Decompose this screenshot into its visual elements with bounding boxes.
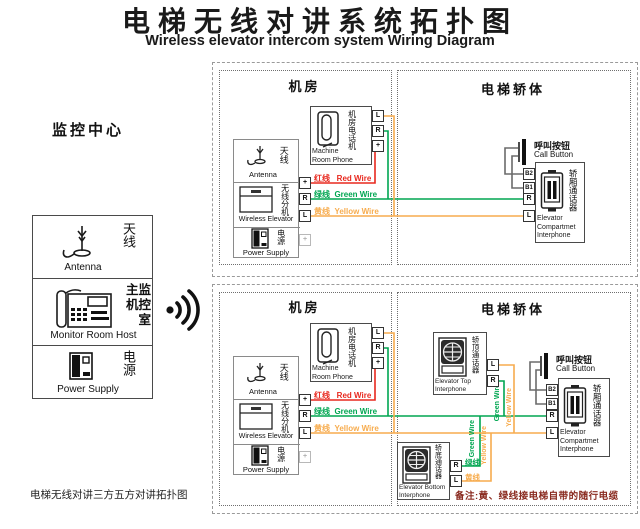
yellow-wire-top	[311, 116, 523, 216]
green-wire-short-label: 绿线	[465, 457, 480, 468]
terminal-plus: +	[299, 394, 311, 406]
phone-terminal-l: L	[372, 327, 384, 339]
bottom-interphone-terminal-r: R	[450, 460, 462, 472]
yellow-wire-label: 黄线 Yellow Wire	[314, 423, 379, 434]
phone-terminal-plus: +	[372, 357, 384, 369]
call-button-wires-bottom	[530, 362, 546, 404]
call-button-icon-bottom	[541, 353, 546, 379]
yellow-wire-label: 黄线 Yellow Wire	[314, 206, 379, 217]
green-wire-label: 绿线 Green Wire	[314, 189, 377, 200]
bottom-interphone-terminal-l: L	[450, 475, 462, 487]
green-wire-riser-label: Green Wire	[494, 384, 501, 421]
terminal-r: R	[299, 193, 311, 205]
terminal-l: L	[299, 427, 311, 439]
compartment-terminal-b1: B1	[546, 398, 558, 410]
green-wire-label: 绿线 Green Wire	[314, 406, 377, 417]
top-call-button-en: Call Button	[534, 150, 573, 159]
red-wire-label: 红线 Red Wire	[314, 173, 371, 184]
terminal-plus-unused: +	[299, 451, 311, 463]
compartment-terminal-r: R	[523, 193, 535, 205]
terminal-plus-unused: +	[299, 234, 311, 246]
compartment-terminal-r: R	[546, 410, 558, 422]
call-button-wires-top	[505, 148, 523, 188]
compartment-terminal-b2: B2	[546, 384, 558, 396]
compartment-terminal-b2: B2	[523, 168, 535, 180]
phone-terminal-l: L	[372, 110, 384, 122]
terminal-plus: +	[299, 177, 311, 189]
top-interphone-terminal-l: L	[487, 359, 499, 371]
phone-terminal-r: R	[372, 342, 384, 354]
top-interphone-terminal-r: R	[487, 375, 499, 387]
yellow-wire-short-label: 黄线	[465, 472, 480, 483]
yellow-wire-riser-label: Yellow Wire	[481, 426, 488, 465]
green-wire-riser-label: Green Wire	[469, 420, 476, 457]
compartment-terminal-l: L	[546, 427, 558, 439]
terminal-r: R	[299, 410, 311, 422]
phone-terminal-plus: +	[372, 140, 384, 152]
compartment-terminal-l: L	[523, 210, 535, 222]
terminal-l: L	[299, 210, 311, 222]
bottom-call-button-en: Call Button	[556, 364, 595, 373]
phone-terminal-r: R	[372, 125, 384, 137]
red-wire-label: 红线 Red Wire	[314, 390, 371, 401]
wiring-diagram-page: 电梯无线对讲系统拓扑图 Wireless elevator intercom s…	[0, 0, 640, 529]
wire-layer	[0, 0, 640, 529]
yellow-wire-riser-label: Yellow Wire	[506, 388, 513, 427]
call-button-icon-top	[519, 139, 524, 165]
